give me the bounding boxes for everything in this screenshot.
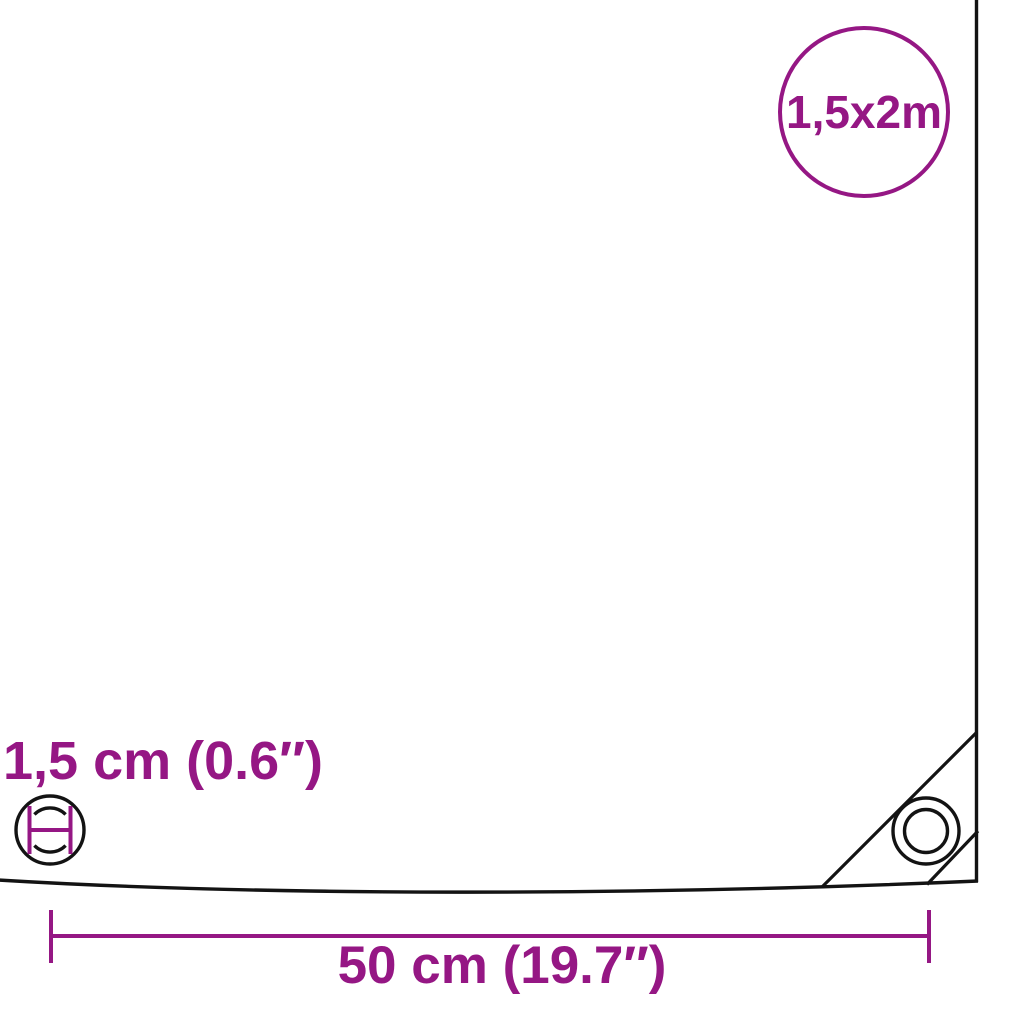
corner-patch-short-seam (927, 831, 978, 885)
eyelet-diameter-icon (16, 796, 84, 864)
product-dimension-diagram: 1,5x2m 1,5 cm (0.6″) 50 cm (19.7″) (0, 0, 1024, 1024)
eyelet-diameter-label: 1,5 cm (0.6″) (3, 731, 323, 791)
tarp-bottom-edge (0, 880, 978, 892)
size-badge-label: 1,5x2m (786, 86, 942, 138)
detail-eyelet-inner-ring-top-arc (34, 808, 65, 814)
diagram-canvas: 1,5x2m 1,5 cm (0.6″) 50 cm (19.7″) (0, 0, 1024, 1024)
detail-eyelet-inner-ring-bottom-arc (34, 846, 65, 852)
corner-eyelet-icon (893, 798, 959, 864)
eyelet-spacing-label: 50 cm (19.7″) (338, 936, 667, 995)
corner-eyelet-inner-ring (905, 810, 948, 853)
size-circle-badge: 1,5x2m (780, 28, 948, 196)
